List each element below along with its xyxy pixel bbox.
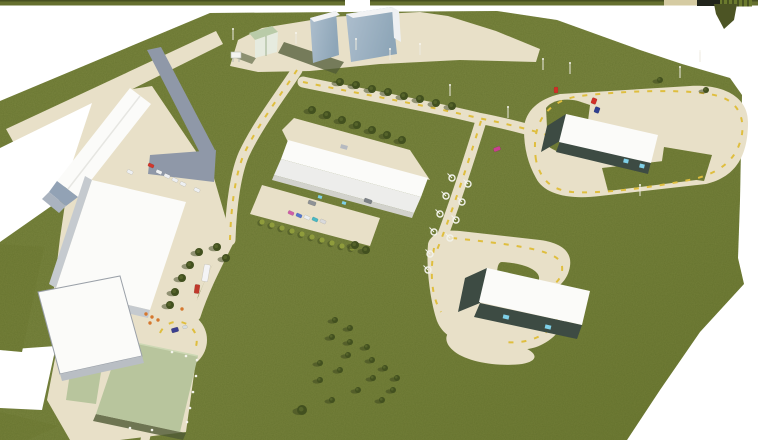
entrance-sign: [231, 52, 241, 58]
top-strip-road-segment: [664, 0, 698, 6]
tree-highlight: [449, 103, 453, 107]
tree-highlight: [318, 361, 321, 364]
bush-icon: [319, 237, 324, 242]
flag-pole-top: [389, 48, 391, 50]
tree-highlight: [380, 398, 383, 401]
tree-highlight: [339, 117, 343, 121]
bush-icon: [329, 240, 334, 245]
rendering-canvas: [0, 0, 760, 440]
tree-highlight: [348, 340, 351, 343]
flag-pole-top: [419, 43, 421, 45]
pad-post: [151, 429, 154, 432]
tree-highlight: [338, 368, 341, 371]
tree-highlight: [395, 376, 398, 379]
pad-post: [192, 391, 195, 394]
site-rendering: [0, 0, 760, 440]
pad-post: [196, 359, 199, 362]
flower-planting: [144, 312, 147, 315]
tree-highlight: [330, 335, 333, 338]
pad-post: [185, 355, 188, 358]
tree-highlight: [417, 96, 421, 100]
tree-highlight: [179, 275, 183, 279]
tree-highlight: [214, 244, 218, 248]
pad-post: [195, 375, 198, 378]
flower-planting: [156, 318, 159, 321]
flower-planting: [148, 321, 151, 324]
flag-pole-top: [355, 38, 357, 40]
flag-pole-top: [542, 58, 544, 60]
tree-highlight: [384, 132, 388, 136]
bush-icon: [269, 222, 274, 227]
tree-highlight: [346, 353, 349, 356]
bush-icon: [289, 228, 294, 233]
tree-highlight: [324, 112, 328, 116]
tree-highlight: [365, 345, 368, 348]
tree-highlight: [370, 358, 373, 361]
tree-highlight: [187, 262, 191, 266]
tree-highlight: [348, 326, 351, 329]
tree-highlight: [299, 407, 304, 412]
tree-highlight: [353, 82, 357, 86]
pad-post: [189, 407, 192, 410]
top-strip-left-edge: [0, 0, 345, 2]
tree-highlight: [383, 366, 386, 369]
tree-highlight: [371, 376, 374, 379]
tree-highlight: [167, 302, 171, 306]
tree-highlight: [333, 318, 336, 321]
flag-pole-top: [295, 32, 297, 34]
tree-highlight: [385, 89, 389, 93]
bush-icon: [339, 243, 344, 248]
red-truck: [194, 284, 200, 294]
tree-highlight: [223, 255, 227, 259]
tree-highlight: [704, 88, 707, 91]
flag-pole-top: [507, 106, 509, 108]
tree-highlight: [172, 289, 176, 293]
red-marker: [554, 87, 558, 93]
flower-planting: [180, 307, 183, 310]
bush-icon: [309, 234, 314, 239]
tree-highlight: [330, 398, 333, 401]
bush-icon: [299, 231, 304, 236]
tree-highlight: [196, 249, 200, 253]
pad-post: [186, 421, 189, 424]
tree-highlight: [658, 78, 661, 81]
flag-pole-top: [639, 184, 641, 186]
pad-post: [171, 351, 174, 354]
flag-pole-top: [699, 50, 701, 52]
flag-pole-top: [449, 84, 451, 86]
tree-highlight: [352, 242, 356, 246]
tree-highlight: [363, 247, 367, 251]
tree-highlight: [318, 378, 321, 381]
flag-pole-top: [569, 62, 571, 64]
tree-highlight: [354, 122, 358, 126]
tree-highlight: [401, 93, 405, 97]
tree-highlight: [356, 388, 359, 391]
tree-highlight: [391, 388, 394, 391]
flower-planting: [150, 315, 153, 318]
flag-pole-top: [232, 28, 234, 30]
flag-pole-top: [679, 66, 681, 68]
tree-highlight: [337, 79, 341, 83]
tree-highlight: [369, 127, 373, 131]
tree-highlight: [433, 100, 437, 104]
bush-icon: [279, 225, 284, 230]
pad-post: [129, 427, 132, 430]
tree-highlight: [369, 86, 373, 90]
tree-highlight: [309, 107, 313, 111]
bush-icon: [259, 219, 264, 224]
tree-highlight: [399, 137, 403, 141]
